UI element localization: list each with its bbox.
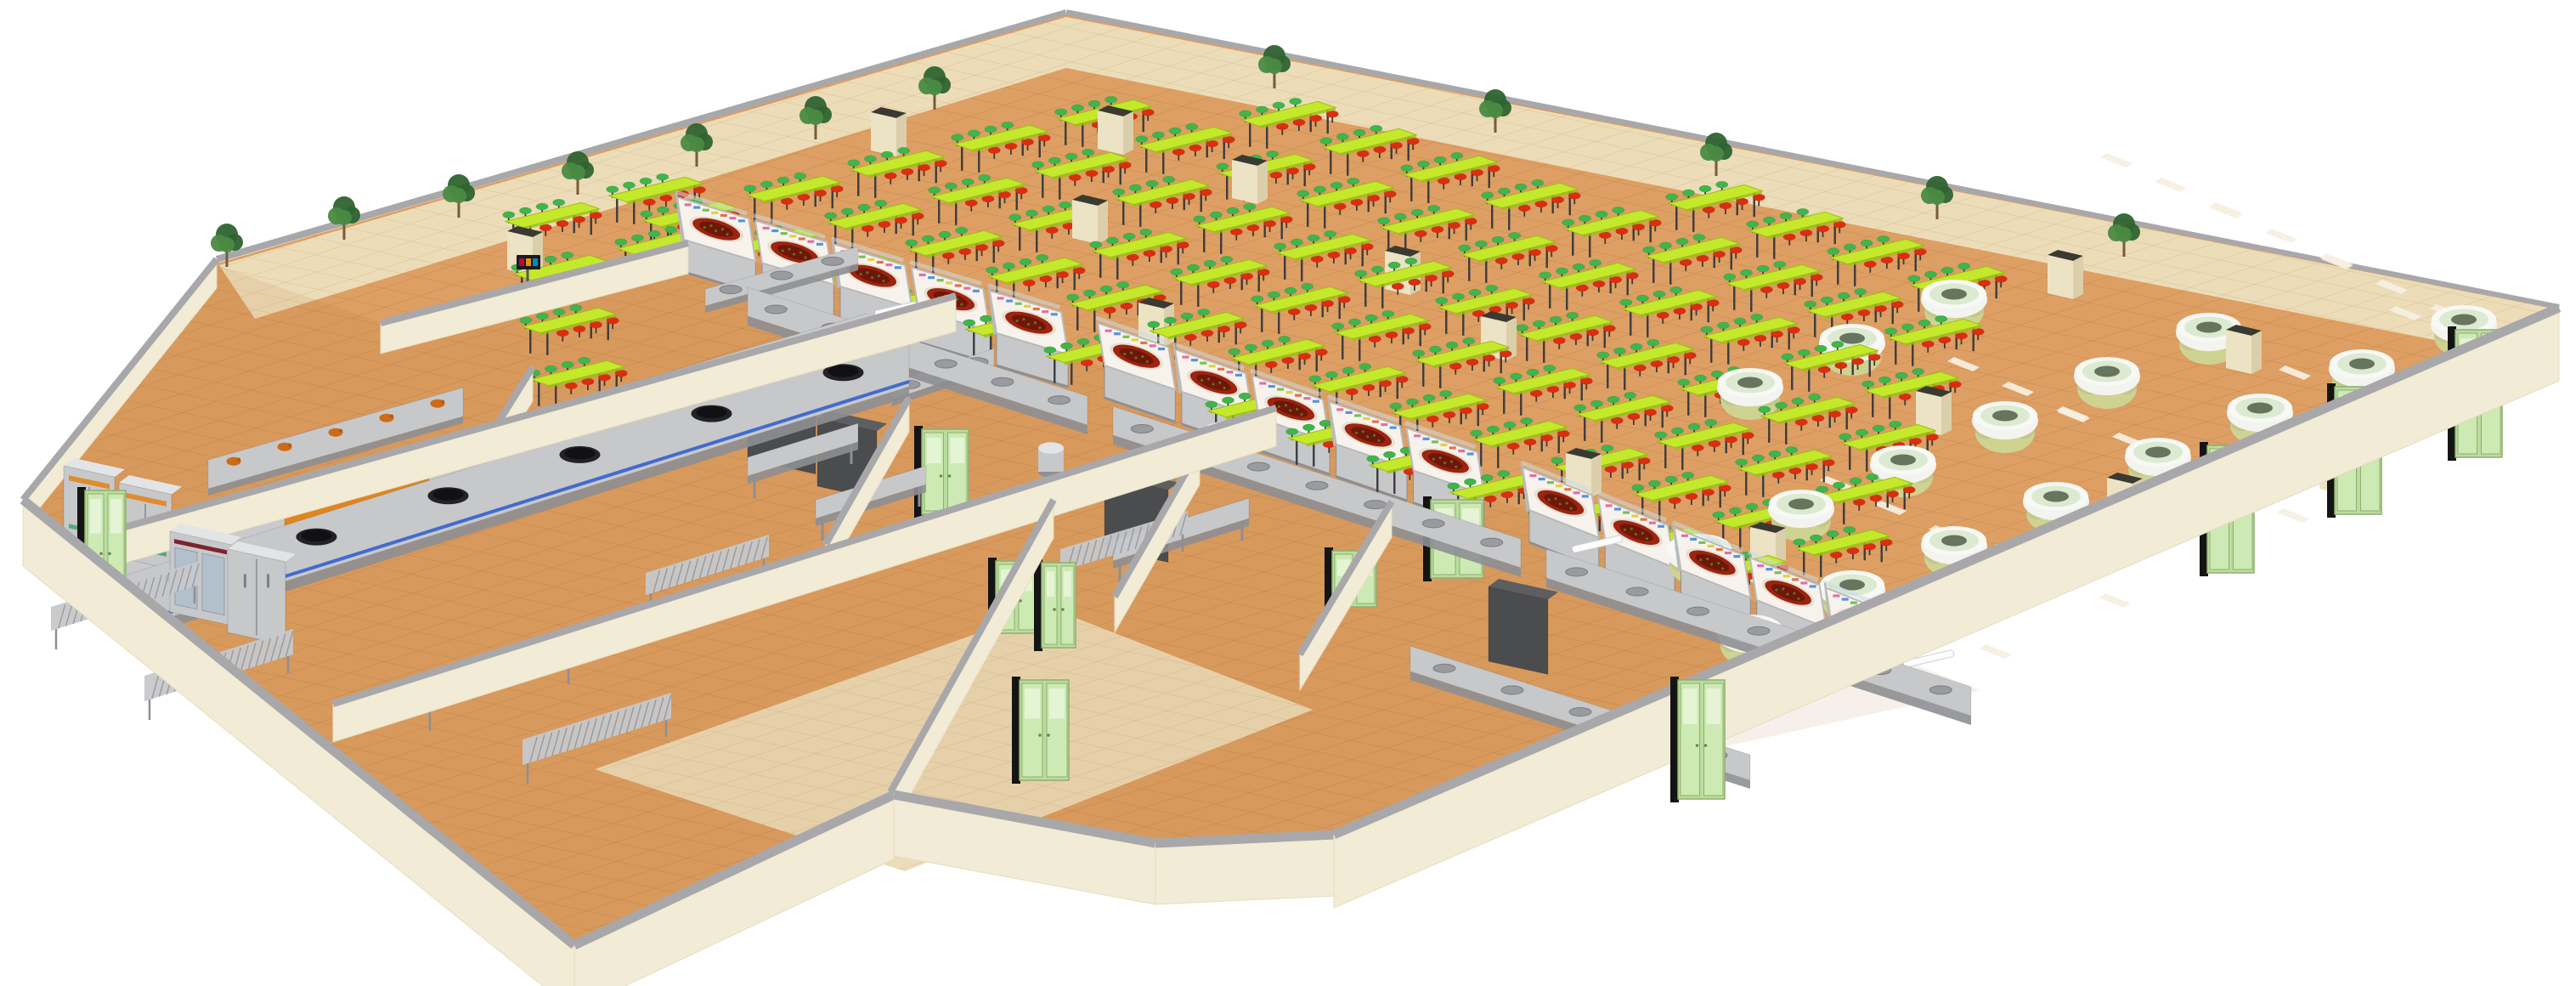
door-corridor-1	[1034, 559, 1076, 651]
canteen-3d-render	[0, 0, 2576, 986]
bottom-mid-outer-wall-2	[1155, 835, 1334, 904]
support-column	[2048, 250, 2083, 299]
support-column	[1232, 155, 1268, 204]
support-column	[1072, 195, 1108, 244]
scene-3d-canteen	[0, 0, 2576, 986]
support-column	[1098, 105, 1133, 155]
round-banquet-table	[2074, 357, 2140, 409]
door-front-right-4	[1670, 677, 1725, 802]
four-door-fridge	[228, 541, 296, 645]
round-banquet-table	[1972, 401, 2038, 453]
door-corridor-2	[1012, 677, 1069, 784]
steam-kettle	[1038, 442, 1064, 478]
support-column	[2226, 325, 2262, 374]
round-banquet-table	[1717, 368, 1783, 420]
wing-equipment	[1489, 579, 1558, 674]
